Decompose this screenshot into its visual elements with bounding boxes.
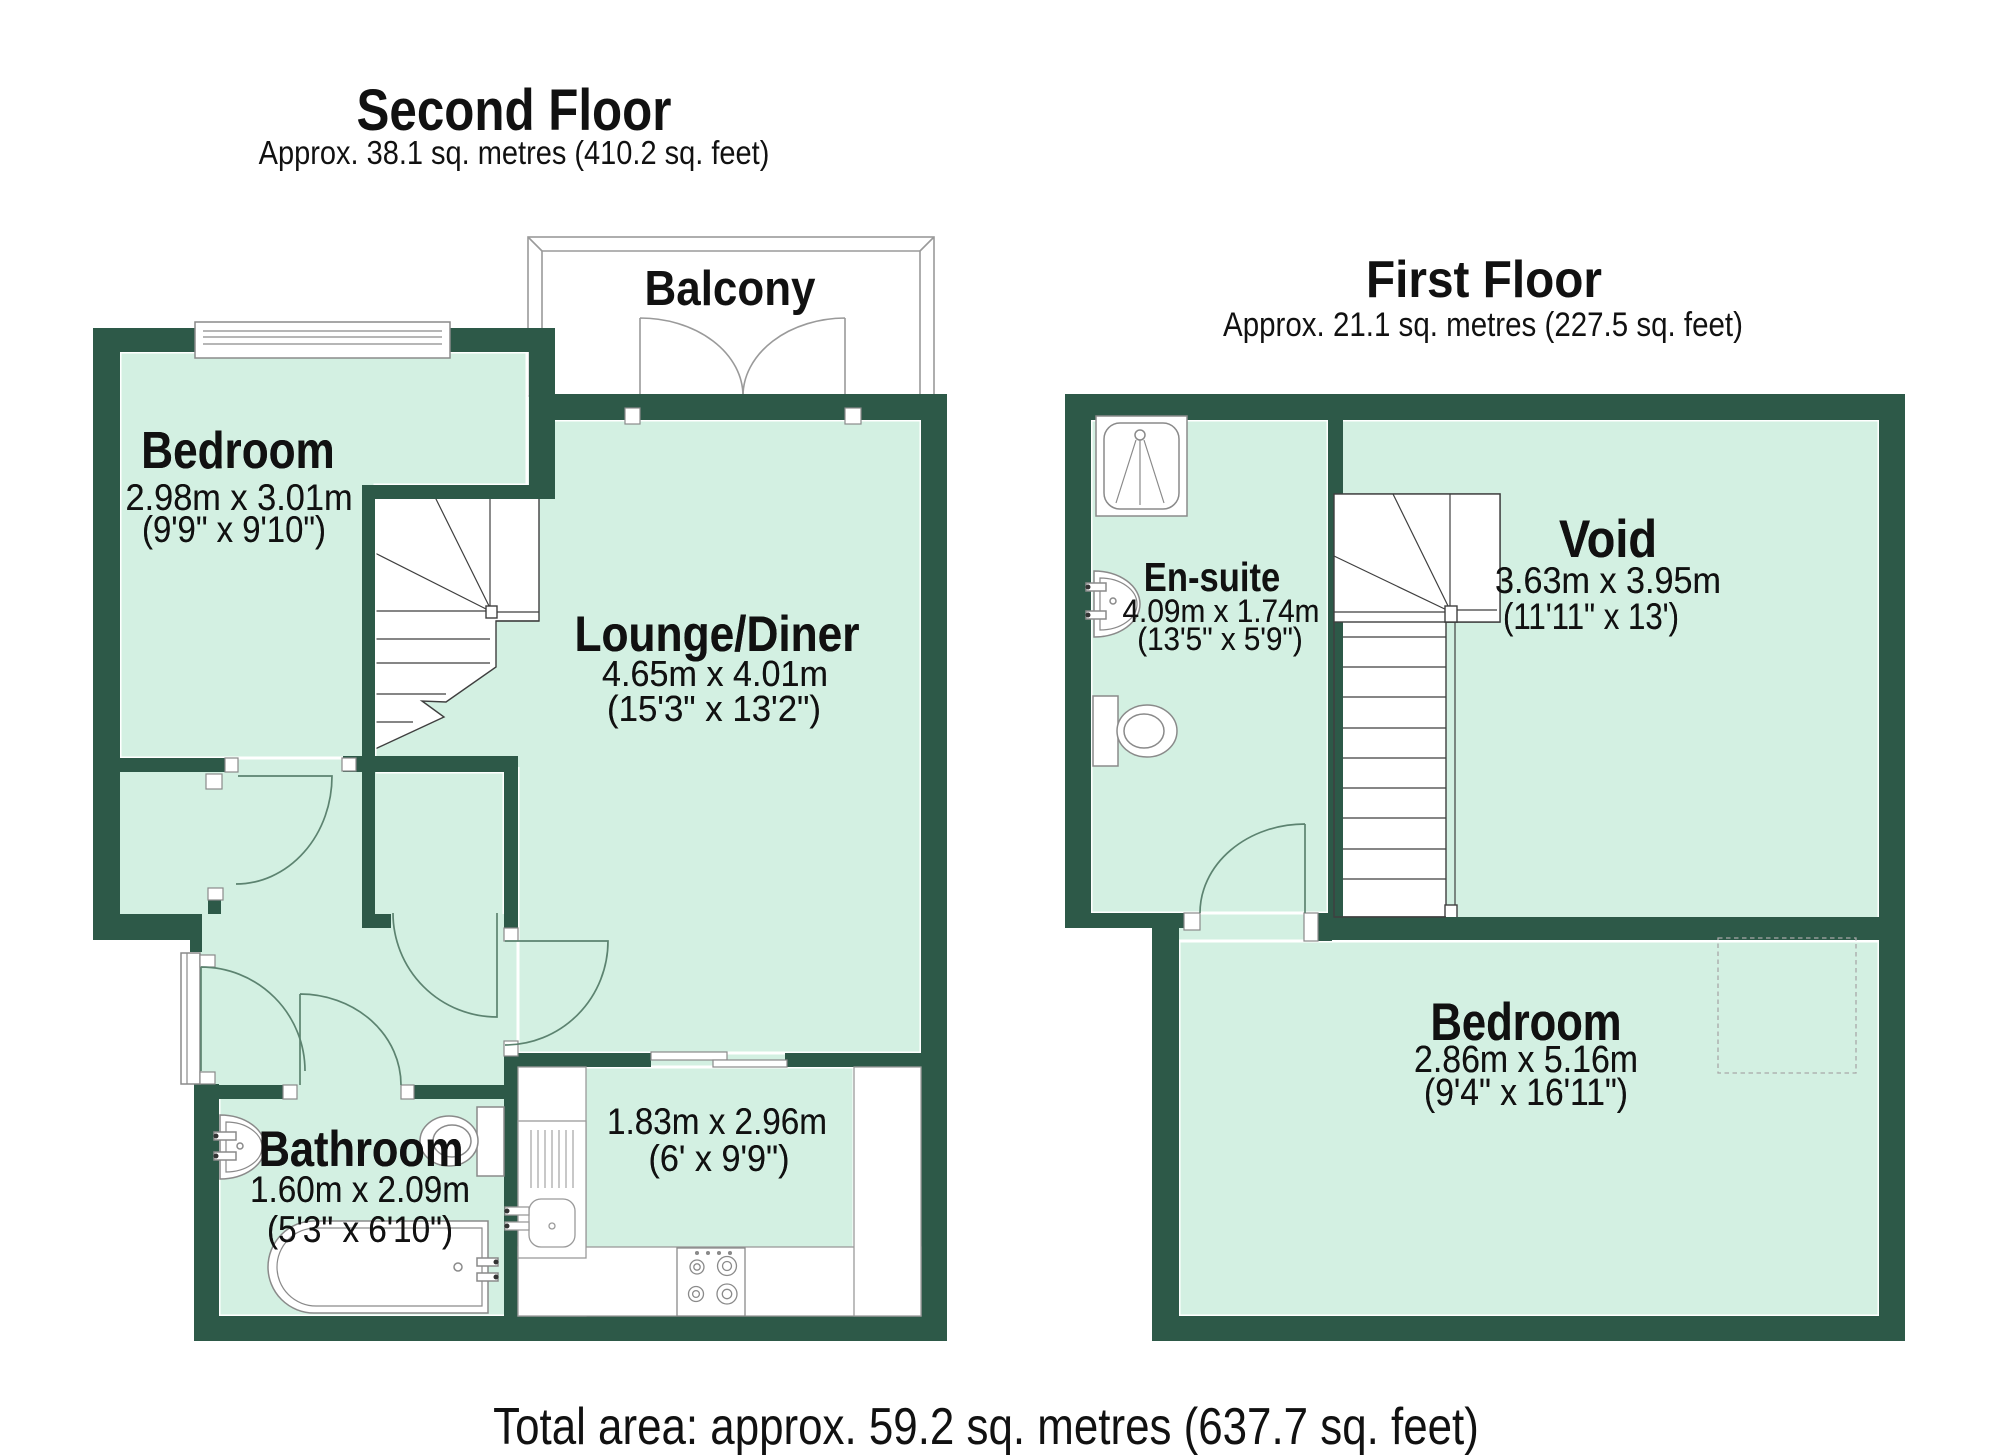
svg-text:Second Floor: Second Floor	[357, 78, 672, 143]
svg-text:Approx. 38.1 sq. metres (410.2: Approx. 38.1 sq. metres (410.2 sq. feet)	[259, 134, 770, 171]
svg-text:Bathroom: Bathroom	[259, 1121, 464, 1177]
svg-text:(6' x 9'9"): (6' x 9'9")	[649, 1138, 790, 1180]
svg-text:(15'3" x 13'2"): (15'3" x 13'2")	[607, 688, 821, 729]
svg-text:Approx. 21.1 sq. metres (227.5: Approx. 21.1 sq. metres (227.5 sq. feet)	[1223, 305, 1743, 343]
svg-text:(13'5" x 5'9"): (13'5" x 5'9")	[1137, 621, 1303, 657]
svg-text:(5'3" x 6'10"): (5'3" x 6'10")	[267, 1209, 453, 1250]
svg-text:First Floor: First Floor	[1366, 250, 1602, 308]
svg-text:1.83m x 2.96m: 1.83m x 2.96m	[607, 1101, 827, 1142]
svg-text:Bedroom: Bedroom	[141, 422, 335, 480]
svg-text:(9'9" x 9'10"): (9'9" x 9'10")	[142, 509, 326, 550]
svg-text:Total area: approx. 59.2 sq. m: Total area: approx. 59.2 sq. metres (637…	[493, 1398, 1479, 1455]
svg-text:(9'4" x 16'11"): (9'4" x 16'11")	[1424, 1071, 1628, 1113]
svg-text:1.60m x 2.09m: 1.60m x 2.09m	[250, 1169, 470, 1210]
svg-text:3.63m x 3.95m: 3.63m x 3.95m	[1495, 560, 1721, 602]
svg-text:Balcony: Balcony	[645, 261, 816, 316]
svg-text:(11'11" x 13'): (11'11" x 13')	[1503, 597, 1679, 638]
